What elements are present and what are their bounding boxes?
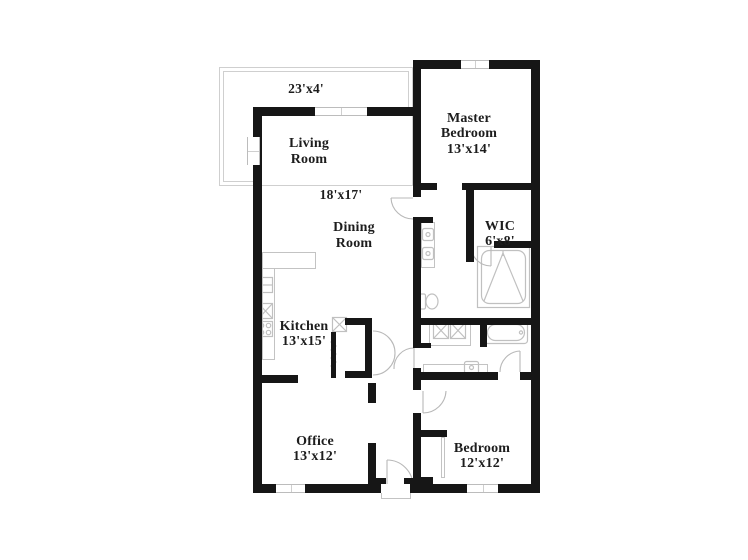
master-sink-2-icon [422, 247, 434, 260]
living-room-dims: 18'x17' [316, 187, 366, 203]
shower-wall-stub [466, 248, 474, 262]
master-bedroom-dims: 13'x14' [427, 142, 511, 158]
master-suite-door-arc-icon [390, 196, 414, 220]
bedroom-closet-door [441, 437, 445, 478]
suite-wall-stub [421, 183, 437, 190]
bath-door-arc-icon [498, 349, 522, 373]
wic-dims: 6'x8' [478, 234, 522, 250]
spine-stub [413, 217, 433, 223]
living-left-window-icon [247, 137, 260, 165]
dining-room-label: Dining Room [328, 220, 380, 251]
spine-wall-b [413, 222, 421, 348]
wic-left-wall [466, 183, 474, 248]
kitchen-label: Kitchen 13'x15' [274, 303, 334, 365]
hall-stub [413, 343, 431, 348]
master-bedroom-label: Master Bedroom 13'x14' [427, 95, 511, 173]
office-dims: 13'x12' [286, 449, 344, 465]
pantry-right-wall [365, 318, 372, 378]
patio-dims-label: 23'x4' [276, 81, 336, 97]
office-label: Office 13'x12' [286, 418, 344, 480]
floor-plan: 23'x4' Master Bedroom 13'x14' Living Roo… [0, 0, 748, 560]
bedroom-label: Bedroom 12'x12' [450, 425, 514, 487]
bath-bottom-wall-b [520, 372, 540, 380]
wic-label: WIC 6'x8' [478, 203, 522, 265]
right-exterior-wall [531, 60, 540, 493]
bedroom-door-arc-icon [422, 390, 447, 415]
bath-top-wall [421, 318, 532, 325]
bath-bottom-wall-a [413, 372, 498, 380]
kitchen-peninsula-counter [262, 252, 316, 269]
pantry-double-door-icon [372, 330, 398, 376]
living-top-window-icon [315, 107, 367, 116]
pantry-bottom-wall [345, 371, 372, 378]
master-window-icon [461, 60, 489, 69]
living-room-label: Living Room [282, 136, 336, 167]
closet-bottom-stub [421, 477, 433, 484]
master-sink-1-icon [422, 228, 434, 241]
bath-divider-wall [480, 318, 487, 347]
office-right-wall-a [368, 383, 376, 403]
bedroom-dims: 12'x12' [450, 456, 514, 472]
master-bedroom-name: Master Bedroom [441, 111, 497, 142]
entry-door-gap [381, 484, 410, 493]
toilet-icon [419, 291, 439, 312]
office-window-icon [276, 484, 305, 493]
kitchen-office-wall [253, 375, 298, 383]
kitchen-dims: 13'x15' [274, 334, 334, 350]
bedroom-name: Bedroom [454, 441, 510, 456]
wic-bottom-wall-a [466, 241, 473, 248]
closet-top-stub [421, 430, 447, 437]
kitchen-name: Kitchen [280, 319, 329, 334]
wic-name: WIC [485, 219, 515, 234]
spine-wall-a [413, 60, 421, 197]
office-name: Office [296, 434, 334, 449]
